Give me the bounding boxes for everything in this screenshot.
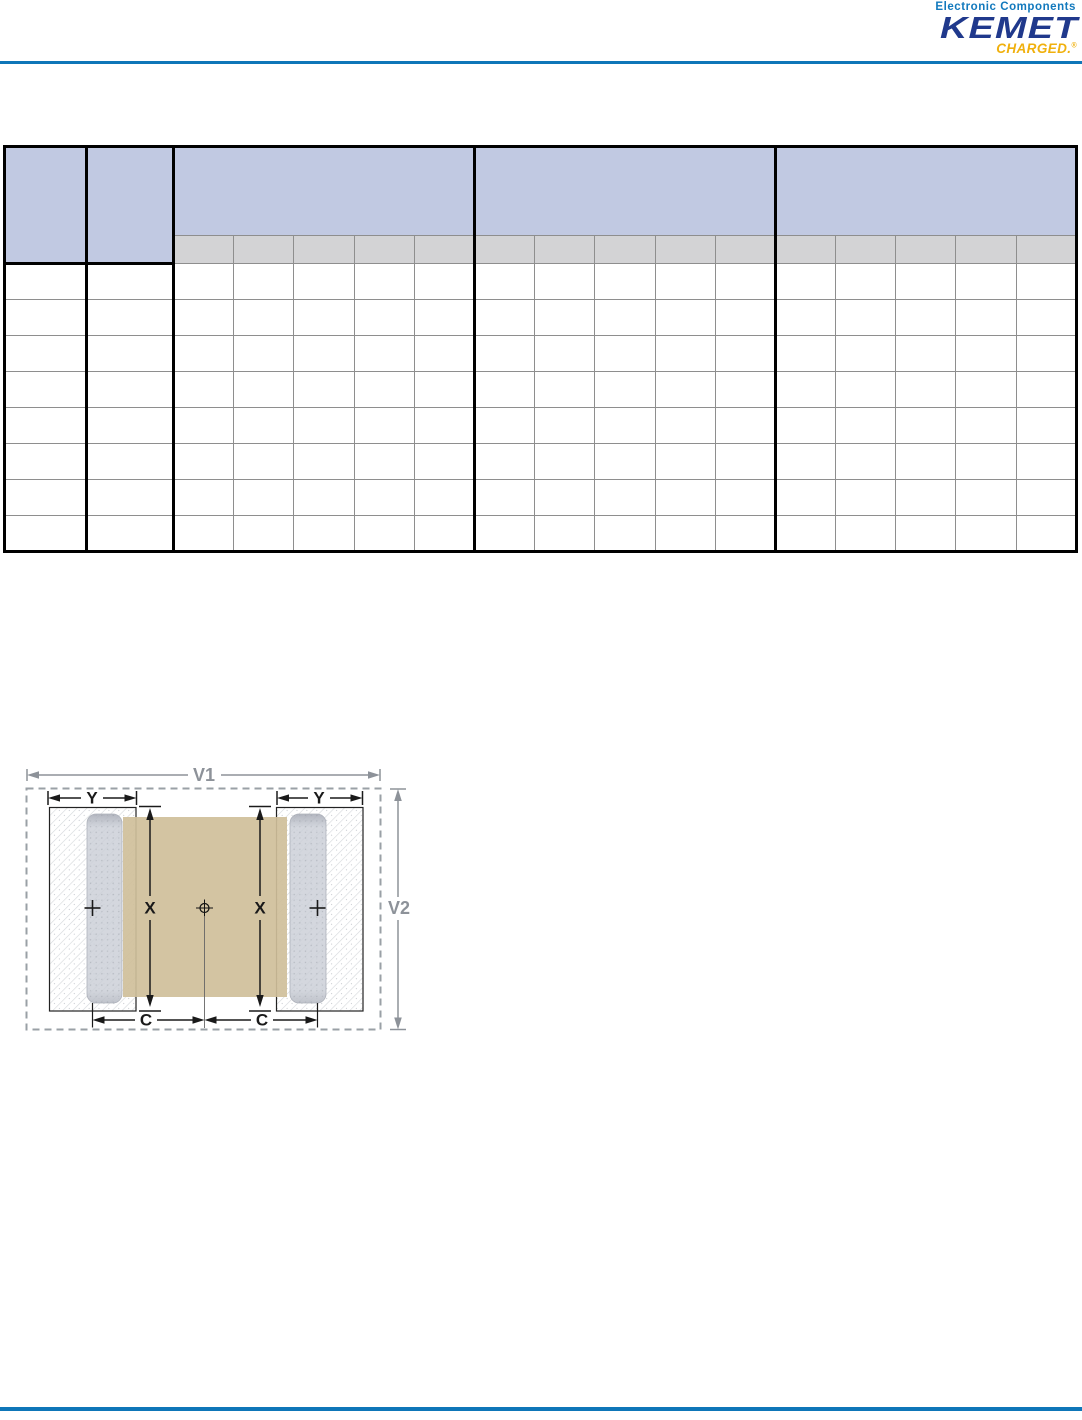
table-header-col-a [5, 147, 87, 264]
table-cell [775, 372, 835, 408]
table-cell [775, 444, 835, 480]
table-cell [1016, 444, 1076, 480]
table-cell [896, 408, 956, 444]
table-cell [715, 336, 775, 372]
table-subheader-cell [234, 236, 294, 264]
table-cell [956, 372, 1016, 408]
table-cell [655, 336, 715, 372]
table-cell [354, 300, 414, 336]
table-subheader-cell [294, 236, 354, 264]
table-cell [5, 264, 87, 300]
table-subheader-cell [414, 236, 474, 264]
table-cell [595, 336, 655, 372]
table-cell [234, 264, 294, 300]
table-cell [775, 516, 835, 552]
table-cell [535, 264, 595, 300]
table-cell [775, 480, 835, 516]
table-cell [5, 480, 87, 516]
table-cell [595, 300, 655, 336]
table-cell [896, 336, 956, 372]
table-cell [595, 264, 655, 300]
dimension-x-left-label: X [144, 899, 156, 918]
table-cell [715, 372, 775, 408]
table-cell [715, 408, 775, 444]
table-cell [595, 408, 655, 444]
table-cell [174, 480, 234, 516]
table-head [5, 147, 1077, 264]
land-pattern-diagram: V1 V2 X [0, 756, 430, 1048]
table-cell [87, 516, 174, 552]
table-row [5, 336, 1077, 372]
table-header-col-b [87, 147, 174, 264]
table-cell [294, 480, 354, 516]
table-cell [836, 264, 896, 300]
table-cell [354, 516, 414, 552]
table-cell [1016, 336, 1076, 372]
table-cell [174, 372, 234, 408]
spec-table-container [3, 145, 1078, 553]
table-cell [715, 300, 775, 336]
table-cell [474, 444, 534, 480]
table-cell [414, 444, 474, 480]
table-subheader-cell [775, 236, 835, 264]
table-cell [1016, 480, 1076, 516]
table-subheader-cell [595, 236, 655, 264]
table-cell [836, 444, 896, 480]
table-cell [595, 516, 655, 552]
table-cell [5, 444, 87, 480]
table-cell [655, 516, 715, 552]
table-cell [354, 264, 414, 300]
table-cell [1016, 372, 1076, 408]
table-cell [474, 264, 534, 300]
table-cell [896, 372, 956, 408]
table-header-group-2 [474, 147, 775, 236]
table-cell [535, 516, 595, 552]
table-cell [474, 480, 534, 516]
table-cell [836, 372, 896, 408]
table-cell [836, 480, 896, 516]
table-subheader-cell [715, 236, 775, 264]
table-cell [775, 264, 835, 300]
table-cell [836, 516, 896, 552]
table-cell [956, 444, 1016, 480]
table-cell [294, 516, 354, 552]
table-cell [775, 408, 835, 444]
table-cell [414, 516, 474, 552]
table-cell [294, 372, 354, 408]
footer-rule [0, 1407, 1082, 1411]
table-cell [87, 372, 174, 408]
logo-charged-text: CHARGED. [996, 41, 1071, 56]
table-cell [535, 300, 595, 336]
table-cell [294, 264, 354, 300]
table-cell [775, 336, 835, 372]
table-cell [234, 480, 294, 516]
table-row [5, 480, 1077, 516]
table-cell [474, 336, 534, 372]
header-rule [0, 61, 1082, 64]
table-cell [174, 264, 234, 300]
table-cell [474, 408, 534, 444]
table-cell [715, 444, 775, 480]
table-cell [174, 408, 234, 444]
spec-table [3, 145, 1078, 553]
table-cell [655, 300, 715, 336]
table-cell [896, 480, 956, 516]
page: { "header": { "tagline": "Electronic Com… [0, 0, 1082, 1420]
table-cell [414, 264, 474, 300]
table-cell [414, 300, 474, 336]
table-row [5, 444, 1077, 480]
table-cell [5, 516, 87, 552]
table-row [5, 300, 1077, 336]
table-body [5, 264, 1077, 552]
table-cell [715, 264, 775, 300]
table-cell [414, 480, 474, 516]
table-cell [354, 408, 414, 444]
table-cell [896, 264, 956, 300]
table-cell [354, 444, 414, 480]
table-cell [294, 336, 354, 372]
table-cell [414, 372, 474, 408]
table-cell [535, 408, 595, 444]
table-cell [655, 372, 715, 408]
table-row [5, 408, 1077, 444]
table-cell [655, 264, 715, 300]
table-cell [535, 444, 595, 480]
table-cell [5, 336, 87, 372]
table-header-row-groups [5, 147, 1077, 236]
table-cell [836, 408, 896, 444]
table-cell [595, 480, 655, 516]
kemet-logo: Electronic Components KEMET CHARGED.® [918, 0, 1078, 60]
table-cell [234, 444, 294, 480]
table-row [5, 372, 1077, 408]
table-cell [655, 444, 715, 480]
table-cell [535, 480, 595, 516]
table-cell [1016, 516, 1076, 552]
table-cell [234, 516, 294, 552]
table-cell [896, 300, 956, 336]
dimension-v1-label: V1 [193, 765, 215, 785]
table-cell [87, 336, 174, 372]
table-cell [595, 372, 655, 408]
table-cell [87, 264, 174, 300]
table-cell [956, 408, 1016, 444]
table-cell [1016, 264, 1076, 300]
dimension-y-right-label: Y [313, 789, 325, 808]
table-cell [87, 444, 174, 480]
logo-charged: CHARGED.® [996, 41, 1077, 56]
table-cell [174, 516, 234, 552]
table-cell [474, 372, 534, 408]
table-cell [836, 336, 896, 372]
table-cell [474, 516, 534, 552]
table-cell [87, 408, 174, 444]
table-cell [1016, 408, 1076, 444]
table-cell [5, 408, 87, 444]
table-cell [655, 408, 715, 444]
table-cell [474, 300, 534, 336]
table-cell [956, 264, 1016, 300]
table-subheader-cell [956, 236, 1016, 264]
table-cell [896, 444, 956, 480]
table-cell [414, 336, 474, 372]
table-cell [775, 300, 835, 336]
table-cell [655, 480, 715, 516]
table-cell [715, 480, 775, 516]
table-cell [354, 372, 414, 408]
table-cell [294, 408, 354, 444]
table-cell [234, 300, 294, 336]
table-cell [234, 372, 294, 408]
table-cell [87, 300, 174, 336]
dimension-x-right-label: X [254, 899, 266, 918]
table-cell [174, 300, 234, 336]
table-cell [956, 300, 1016, 336]
table-cell [715, 516, 775, 552]
table-cell [5, 372, 87, 408]
dimension-y-left-label: Y [86, 789, 98, 808]
table-cell [354, 480, 414, 516]
table-cell [595, 444, 655, 480]
table-row [5, 516, 1077, 552]
table-subheader-cell [655, 236, 715, 264]
table-cell [354, 336, 414, 372]
dimension-c-right-label: C [256, 1011, 268, 1030]
table-row [5, 264, 1077, 300]
table-cell [956, 516, 1016, 552]
table-subheader-cell [354, 236, 414, 264]
table-subheader-cell [174, 236, 234, 264]
table-cell [234, 408, 294, 444]
table-cell [836, 300, 896, 336]
table-cell [294, 300, 354, 336]
table-header-group-3 [775, 147, 1076, 236]
table-subheader-cell [1016, 236, 1076, 264]
table-header-group-1 [174, 147, 475, 236]
table-cell [896, 516, 956, 552]
table-cell [956, 336, 1016, 372]
table-cell [1016, 300, 1076, 336]
table-cell [5, 300, 87, 336]
table-subheader-cell [836, 236, 896, 264]
table-cell [174, 444, 234, 480]
table-subheader-cell [474, 236, 534, 264]
table-cell [414, 408, 474, 444]
table-cell [535, 336, 595, 372]
table-cell [535, 372, 595, 408]
dimension-v2-label: V2 [388, 898, 410, 918]
dimension-c-left-label: C [140, 1011, 152, 1030]
table-cell [87, 480, 174, 516]
table-cell [234, 336, 294, 372]
table-cell [294, 444, 354, 480]
table-cell [956, 480, 1016, 516]
registered-mark: ® [1071, 43, 1077, 50]
table-subheader-cell [535, 236, 595, 264]
table-cell [174, 336, 234, 372]
table-subheader-cell [896, 236, 956, 264]
